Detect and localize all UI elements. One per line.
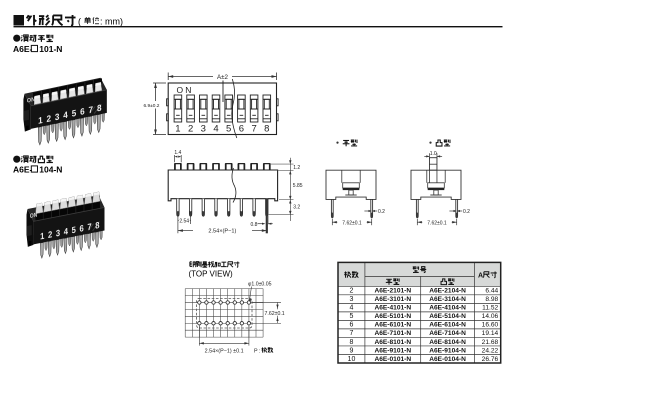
svg-text:7: 7 — [349, 330, 353, 337]
svg-text:3.2: 3.2 — [293, 205, 300, 211]
svg-text:A6E-: A6E- — [13, 165, 33, 175]
svg-text:1.2: 1.2 — [293, 165, 300, 171]
svg-text:24.22: 24.22 — [482, 347, 499, 354]
svg-text:104-N: 104-N — [39, 165, 62, 175]
svg-text:2: 2 — [48, 229, 53, 241]
svg-text:2: 2 — [188, 123, 193, 134]
svg-text:A6E-7104-N: A6E-7104-N — [429, 330, 466, 337]
svg-text:7: 7 — [251, 123, 256, 134]
svg-text:1: 1 — [38, 115, 43, 126]
svg-text:(: ( — [78, 17, 81, 27]
svg-text:8: 8 — [264, 123, 269, 134]
svg-text:(TOP VIEW): (TOP VIEW) — [189, 269, 233, 278]
svg-text:8: 8 — [95, 219, 100, 231]
svg-text:A±2: A±2 — [217, 74, 229, 81]
svg-text:P :: P : — [254, 348, 261, 354]
svg-text:A6E-4101-N: A6E-4101-N — [374, 305, 411, 312]
svg-text:7.62±0.1: 7.62±0.1 — [342, 220, 362, 226]
svg-text:A6E-9101-N: A6E-9101-N — [374, 347, 411, 354]
svg-text:ON: ON — [177, 85, 194, 95]
svg-text:: mm): : mm) — [100, 17, 123, 27]
svg-text:A6E-6101-N: A6E-6101-N — [374, 322, 411, 329]
svg-text:A6E-8104-N: A6E-8104-N — [429, 339, 466, 346]
svg-text:3: 3 — [349, 296, 353, 303]
svg-text:2: 2 — [349, 288, 353, 295]
svg-text:A6E-7101-N: A6E-7101-N — [374, 330, 411, 337]
svg-text:8: 8 — [97, 102, 102, 113]
svg-text:5: 5 — [72, 107, 77, 118]
svg-text:10: 10 — [348, 356, 356, 363]
svg-text:A6E-2104-N: A6E-2104-N — [429, 288, 466, 295]
svg-text:14.06: 14.06 — [482, 313, 499, 320]
svg-text:A6E-4104-N: A6E-4104-N — [429, 305, 466, 312]
svg-text:8.98: 8.98 — [485, 296, 498, 303]
svg-text:6: 6 — [80, 222, 85, 234]
svg-text:2.54×(P−1) ±0.1: 2.54×(P−1) ±0.1 — [205, 348, 244, 354]
svg-text:3: 3 — [55, 111, 60, 122]
svg-text:2.54×(P−1): 2.54×(P−1) — [208, 229, 236, 235]
svg-text:21.68: 21.68 — [482, 339, 499, 346]
svg-text:A6E-0101-N: A6E-0101-N — [374, 356, 411, 363]
svg-text:A6E-5101-N: A6E-5101-N — [374, 313, 411, 320]
svg-text:A6E-3104-N: A6E-3104-N — [429, 296, 466, 303]
svg-text:A6E-8101-N: A6E-8101-N — [374, 339, 411, 346]
svg-text:6: 6 — [80, 106, 85, 117]
svg-text:7.62±0.1: 7.62±0.1 — [265, 311, 285, 317]
svg-text:5.85: 5.85 — [293, 183, 303, 189]
svg-text:2.54: 2.54 — [179, 218, 189, 224]
svg-text:φ1.0±0.05: φ1.0±0.05 — [248, 281, 272, 287]
svg-text:2: 2 — [46, 113, 51, 124]
svg-text:0.2: 0.2 — [378, 209, 385, 215]
svg-text:11.52: 11.52 — [482, 305, 498, 312]
svg-text:4: 4 — [213, 123, 218, 134]
svg-text:A6E-0104-N: A6E-0104-N — [429, 356, 466, 363]
svg-text:7: 7 — [89, 104, 94, 115]
svg-text:4: 4 — [64, 225, 69, 237]
svg-text:19.14: 19.14 — [482, 330, 499, 337]
svg-text:1: 1 — [40, 230, 45, 242]
svg-text:5: 5 — [349, 313, 353, 320]
svg-text:4: 4 — [63, 109, 68, 120]
svg-text:101-N: 101-N — [39, 44, 62, 54]
svg-text:A6E-5104-N: A6E-5104-N — [429, 313, 466, 320]
svg-text:6: 6 — [349, 322, 353, 329]
svg-text:3: 3 — [56, 227, 61, 239]
svg-text:1.4: 1.4 — [174, 150, 181, 156]
svg-text:A6E-2101-N: A6E-2101-N — [374, 288, 411, 295]
svg-text:1.0: 1.0 — [430, 151, 437, 157]
svg-text:5: 5 — [226, 123, 231, 134]
svg-text:A6E-9104-N: A6E-9104-N — [429, 347, 466, 354]
svg-text:A6E-: A6E- — [13, 44, 33, 54]
svg-text:1: 1 — [175, 123, 180, 134]
svg-text:A: A — [478, 273, 483, 280]
svg-text:7.62±0.1: 7.62±0.1 — [427, 220, 447, 226]
svg-text:6: 6 — [239, 123, 244, 134]
svg-text:A6E-3101-N: A6E-3101-N — [374, 296, 411, 303]
svg-text:7: 7 — [87, 221, 92, 233]
svg-text:16.60: 16.60 — [482, 322, 499, 329]
svg-text:9: 9 — [349, 347, 353, 354]
svg-text:0.2: 0.2 — [463, 209, 470, 215]
svg-text:6.9±0.2: 6.9±0.2 — [144, 103, 160, 109]
svg-text:A6E-6104-N: A6E-6104-N — [429, 322, 466, 329]
svg-text:0.8: 0.8 — [251, 222, 258, 228]
svg-text:4: 4 — [349, 305, 353, 312]
svg-text:3: 3 — [201, 123, 206, 134]
svg-text:26.76: 26.76 — [482, 356, 499, 363]
svg-text:6.44: 6.44 — [485, 288, 498, 295]
svg-text:5: 5 — [72, 224, 77, 236]
svg-text:8: 8 — [349, 339, 353, 346]
